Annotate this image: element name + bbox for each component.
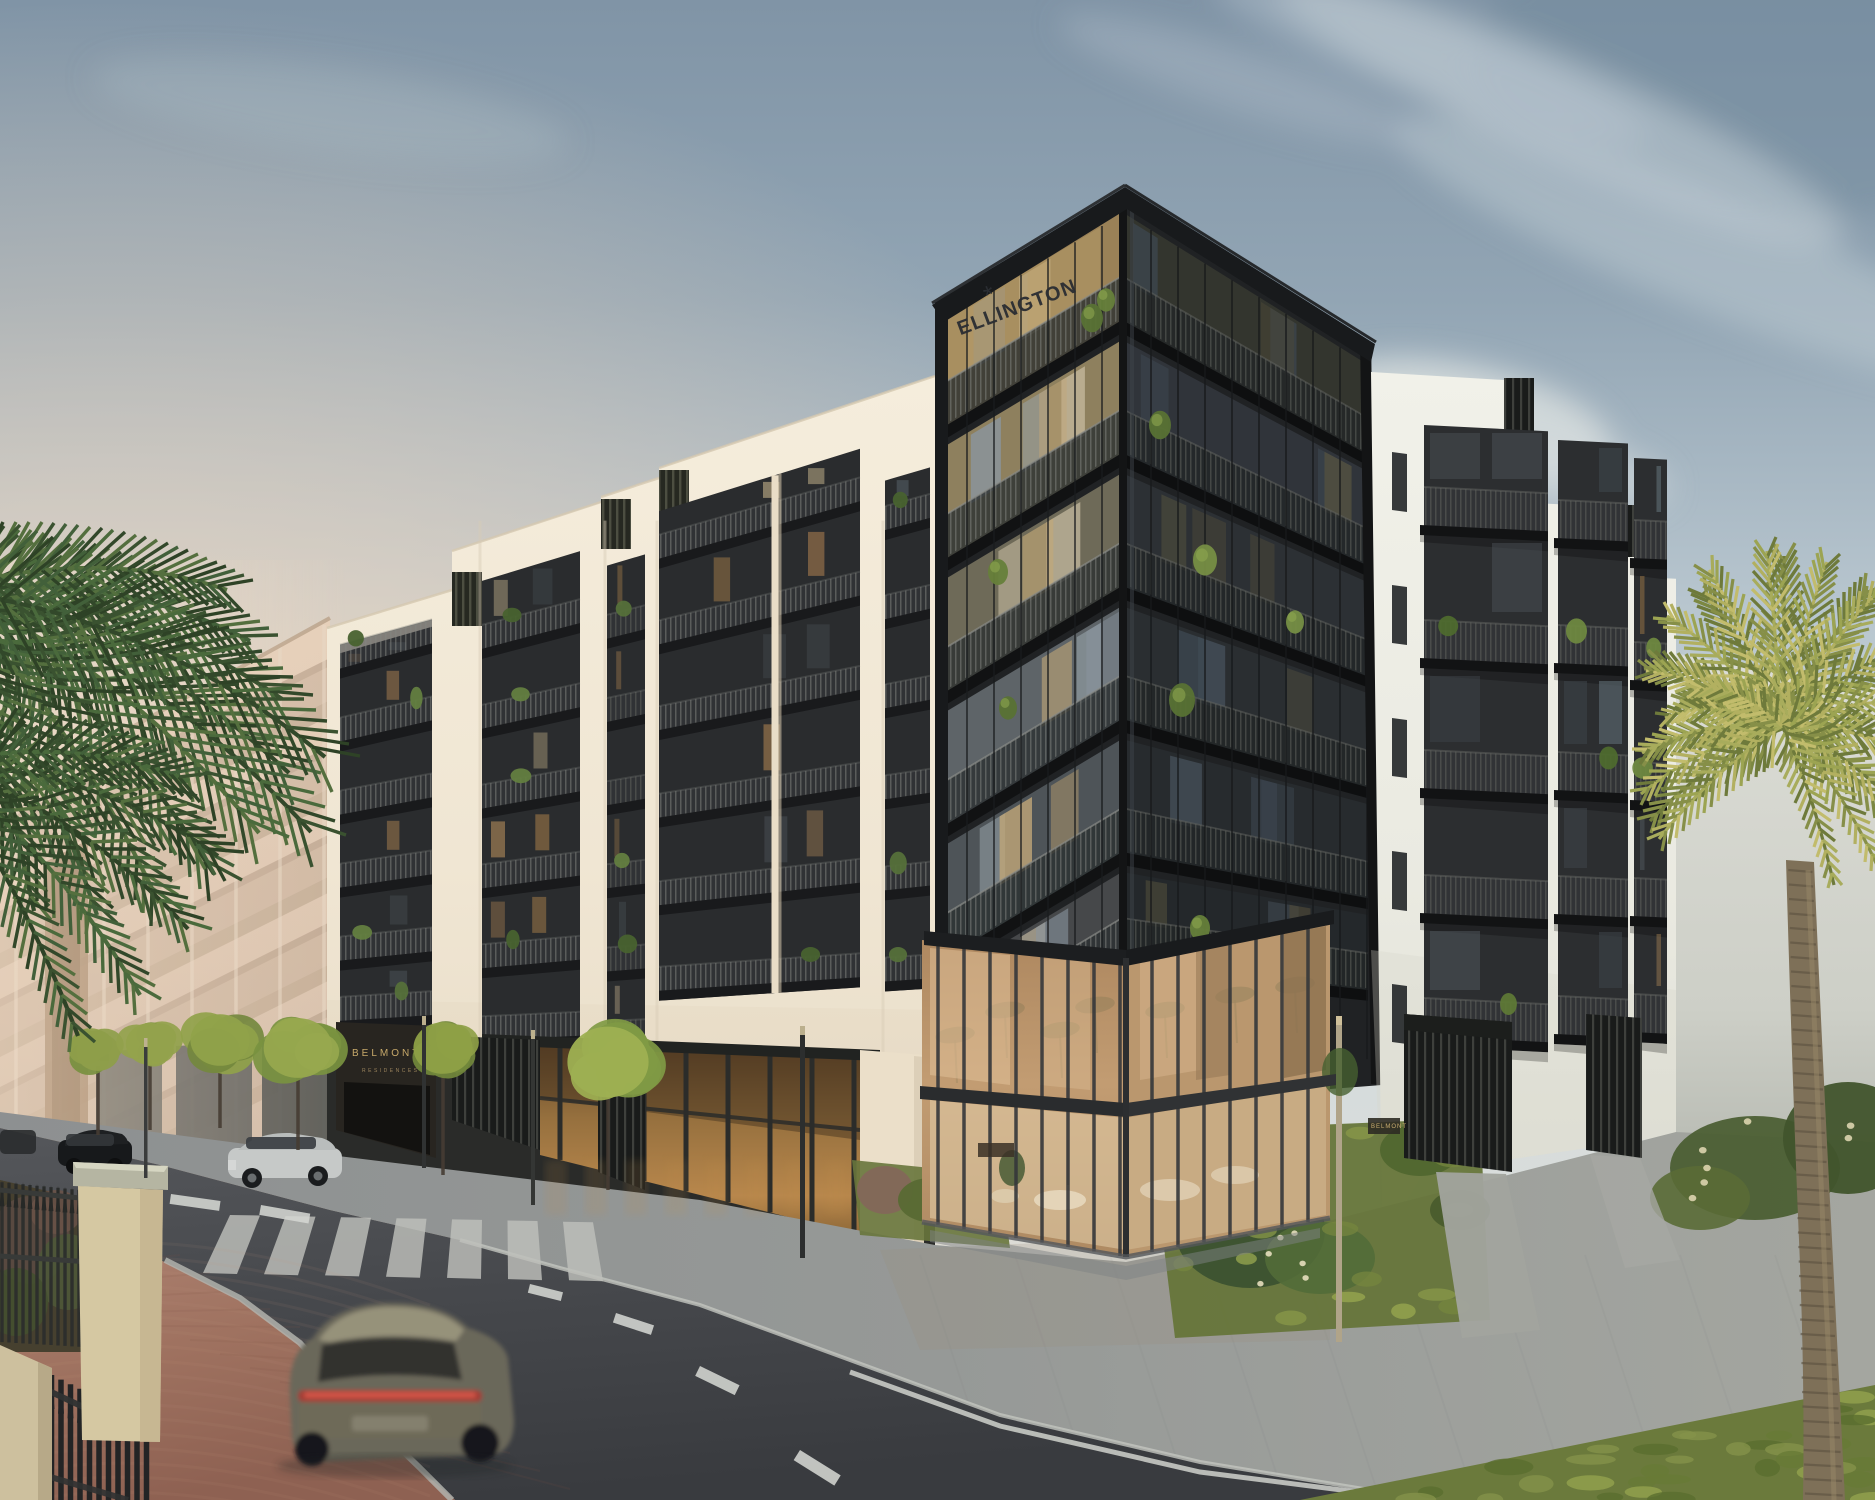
svg-text:BELMONT: BELMONT bbox=[1371, 1124, 1407, 1130]
svg-text:BELMONT: BELMONT bbox=[352, 1048, 421, 1059]
svg-text:RESIDENCES: RESIDENCES bbox=[362, 1068, 420, 1074]
